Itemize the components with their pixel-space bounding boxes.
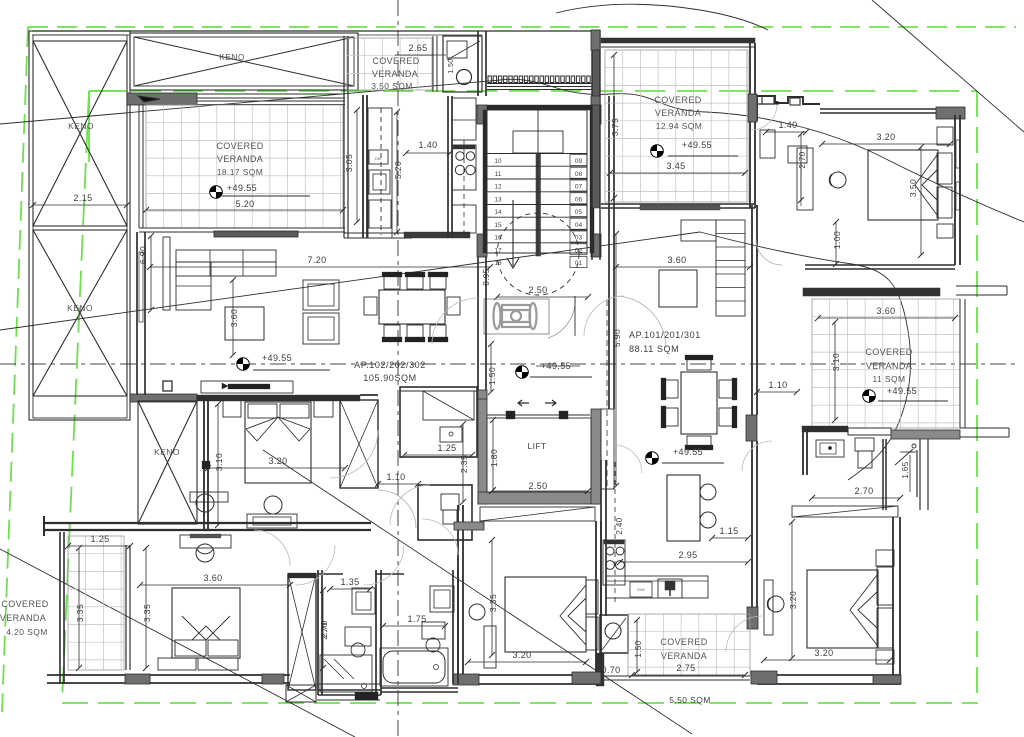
svg-text:2.70: 2.70 <box>798 151 807 168</box>
svg-text:3.60: 3.60 <box>203 573 222 583</box>
svg-text:2.70: 2.70 <box>854 486 873 496</box>
svg-text:3.20: 3.20 <box>512 650 531 660</box>
svg-text:5.20: 5.20 <box>393 161 403 179</box>
svg-text:15: 15 <box>494 222 502 229</box>
svg-text:COVERED: COVERED <box>865 347 912 357</box>
svg-text:LIFT: LIFT <box>527 441 546 451</box>
svg-text:DM: DM <box>375 156 381 161</box>
svg-text:3.05: 3.05 <box>344 154 354 172</box>
svg-text:3.50 SQM: 3.50 SQM <box>371 81 412 91</box>
svg-text:COVERED: COVERED <box>654 95 701 105</box>
svg-text:06: 06 <box>575 196 583 203</box>
svg-text:3.45: 3.45 <box>666 161 685 171</box>
svg-text:VERANDA: VERANDA <box>661 651 707 661</box>
svg-text:1.40: 1.40 <box>778 120 797 130</box>
svg-text:88.11 SQM: 88.11 SQM <box>629 344 679 354</box>
svg-text:KENO: KENO <box>154 447 180 457</box>
svg-text:2.70: 2.70 <box>320 620 329 637</box>
svg-text:08: 08 <box>575 171 583 178</box>
svg-text:105.90SQM: 105.90SQM <box>363 373 416 383</box>
svg-text:5.20: 5.20 <box>235 199 254 209</box>
svg-text:14: 14 <box>494 209 502 216</box>
svg-text:10: 10 <box>494 158 502 165</box>
svg-text:3.35: 3.35 <box>142 604 152 622</box>
svg-text:D/W: D/W <box>637 587 645 592</box>
svg-text:1.15: 1.15 <box>719 526 738 536</box>
svg-text:VERANDA: VERANDA <box>217 154 263 164</box>
svg-text:COVERED: COVERED <box>1 599 48 609</box>
svg-text:1.10: 1.10 <box>768 380 787 390</box>
svg-text:1.50: 1.50 <box>634 640 643 657</box>
svg-text:KENO: KENO <box>68 121 94 131</box>
svg-text:3.20: 3.20 <box>814 648 833 658</box>
svg-text:+49.55: +49.55 <box>673 447 703 457</box>
svg-text:3.60: 3.60 <box>667 255 686 265</box>
svg-text:VERANDA: VERANDA <box>655 108 701 118</box>
svg-text:2.75: 2.75 <box>676 663 695 673</box>
svg-text:17: 17 <box>494 247 502 254</box>
svg-text:3.75: 3.75 <box>610 118 620 136</box>
svg-text:3.60: 3.60 <box>876 306 895 316</box>
svg-text:2.65: 2.65 <box>408 43 427 53</box>
svg-text:09: 09 <box>575 158 583 165</box>
svg-text:3.20: 3.20 <box>876 132 895 142</box>
svg-text:COVERED: COVERED <box>660 637 707 647</box>
svg-text:2.95: 2.95 <box>678 550 697 560</box>
svg-text:2.50: 2.50 <box>528 481 547 491</box>
svg-text:16: 16 <box>494 235 502 242</box>
svg-text:VERANDA: VERANDA <box>372 69 418 79</box>
svg-text:12.94 SQM: 12.94 SQM <box>656 121 703 131</box>
svg-text:1.65: 1.65 <box>901 461 910 478</box>
svg-text:+49.55: +49.55 <box>682 140 712 150</box>
svg-text:+49.55: +49.55 <box>262 353 292 363</box>
svg-text:3.20: 3.20 <box>268 456 287 466</box>
svg-text:COVERED: COVERED <box>372 56 419 66</box>
svg-text:1.50: 1.50 <box>448 58 455 73</box>
svg-text:1.50: 1.50 <box>487 367 497 385</box>
svg-text:3.35: 3.35 <box>488 594 498 612</box>
svg-text:1.80: 1.80 <box>489 449 499 467</box>
svg-text:07: 07 <box>575 184 583 191</box>
svg-text:3.20: 3.20 <box>788 591 798 609</box>
svg-text:18.17 SQM: 18.17 SQM <box>217 167 264 177</box>
svg-text:1.40: 1.40 <box>418 140 437 150</box>
svg-text:+49.55: +49.55 <box>227 183 257 193</box>
svg-text:11 SQM: 11 SQM <box>873 374 906 384</box>
svg-text:01: 01 <box>575 260 583 267</box>
svg-text:AP.102/202/302: AP.102/202/302 <box>354 360 426 370</box>
svg-text:12: 12 <box>494 184 502 191</box>
svg-text:3.35: 3.35 <box>75 604 85 622</box>
svg-text:COVERED: COVERED <box>216 141 263 151</box>
svg-text:7.20: 7.20 <box>307 255 326 265</box>
svg-text:1.25: 1.25 <box>90 534 109 544</box>
svg-text:13: 13 <box>494 196 502 203</box>
svg-text:VERANDA: VERANDA <box>0 613 46 623</box>
svg-text:4.20 SQM: 4.20 SQM <box>6 627 47 637</box>
svg-text:3.50: 3.50 <box>908 179 918 197</box>
svg-text:1.25: 1.25 <box>437 443 456 453</box>
svg-text:+49.55: +49.55 <box>887 386 917 396</box>
svg-text:03: 03 <box>575 235 583 242</box>
svg-text:2.40: 2.40 <box>615 517 624 534</box>
svg-text:5.50 SQM: 5.50 SQM <box>669 695 710 705</box>
svg-text:0.70: 0.70 <box>601 665 620 675</box>
svg-text:AP.101/201/301: AP.101/201/301 <box>629 330 701 340</box>
svg-text:KENO: KENO <box>67 303 93 313</box>
svg-text:1.10: 1.10 <box>386 472 405 482</box>
svg-text:05: 05 <box>575 209 583 216</box>
svg-text:VERANDA: VERANDA <box>866 361 912 371</box>
svg-text:3.10: 3.10 <box>831 353 841 371</box>
svg-text:1.35: 1.35 <box>340 577 359 587</box>
svg-text:2.15: 2.15 <box>73 193 92 203</box>
svg-text:11: 11 <box>495 171 502 178</box>
svg-text:1.75: 1.75 <box>407 614 426 624</box>
svg-text:2.50: 2.50 <box>528 285 547 295</box>
svg-text:3.60: 3.60 <box>229 309 239 327</box>
svg-text:1.00: 1.00 <box>832 231 842 249</box>
svg-text:KENO: KENO <box>219 52 245 62</box>
svg-text:04: 04 <box>575 222 583 229</box>
svg-text:2.35: 2.35 <box>459 455 469 473</box>
